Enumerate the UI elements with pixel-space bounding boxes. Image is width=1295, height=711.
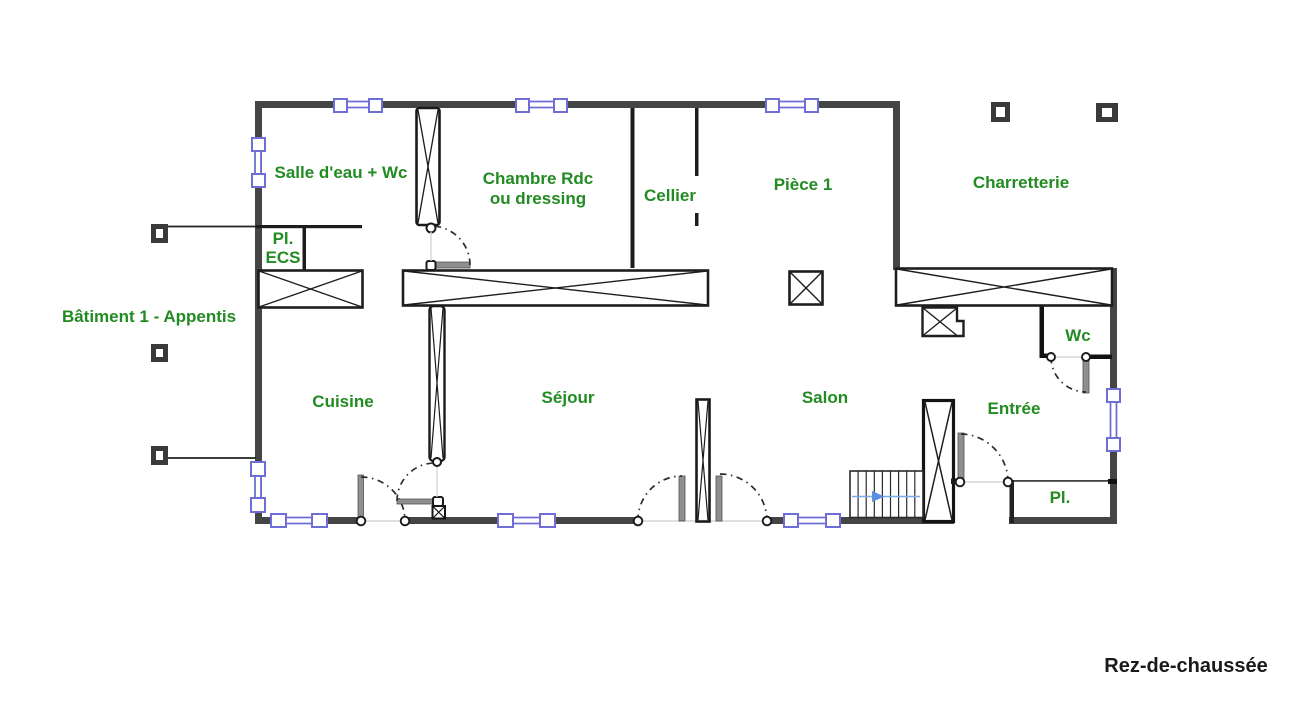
svg-text:Salle d'eau + Wc: Salle d'eau + Wc	[274, 163, 407, 182]
svg-text:Entrée: Entrée	[988, 399, 1041, 418]
svg-text:Bâtiment 1 - Appentis: Bâtiment 1 - Appentis	[62, 307, 236, 326]
svg-text:Cuisine: Cuisine	[312, 392, 373, 411]
svg-text:Pièce 1: Pièce 1	[774, 175, 833, 194]
svg-text:Séjour: Séjour	[542, 388, 595, 407]
svg-text:Cellier: Cellier	[644, 186, 696, 205]
svg-text:Charretterie: Charretterie	[973, 173, 1069, 192]
svg-text:Chambre Rdc: Chambre Rdc	[483, 169, 594, 188]
svg-text:Salon: Salon	[802, 388, 848, 407]
svg-text:Wc: Wc	[1065, 326, 1091, 345]
svg-text:Rez-de-chaussée: Rez-de-chaussée	[1104, 655, 1267, 677]
svg-text:Pl.: Pl.	[1050, 488, 1071, 507]
svg-text:Pl.: Pl.	[273, 229, 294, 248]
svg-text:ou dressing: ou dressing	[490, 189, 586, 208]
svg-text:ECS: ECS	[266, 248, 301, 267]
